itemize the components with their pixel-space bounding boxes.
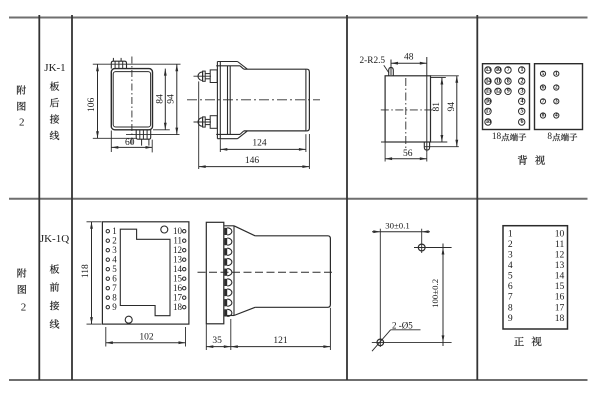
svg-text:12: 12	[173, 245, 182, 255]
svg-text:18: 18	[492, 132, 502, 142]
svg-text:94: 94	[447, 102, 457, 112]
svg-text:16: 16	[173, 283, 183, 293]
svg-text:10: 10	[173, 226, 183, 236]
svg-text:JK-1: JK-1	[44, 62, 65, 74]
svg-text:18: 18	[173, 302, 183, 312]
svg-text:5: 5	[508, 271, 513, 282]
svg-text:15: 15	[555, 281, 565, 292]
svg-text:18: 18	[555, 313, 565, 324]
svg-text:15: 15	[173, 274, 183, 284]
svg-text:2: 2	[555, 85, 558, 91]
svg-text:2: 2	[112, 236, 117, 246]
svg-text:81: 81	[432, 102, 442, 112]
svg-text:60: 60	[125, 138, 135, 148]
svg-text:17: 17	[486, 109, 491, 115]
svg-text:14: 14	[173, 264, 183, 274]
svg-text:118: 118	[81, 264, 91, 278]
svg-text:14: 14	[555, 271, 565, 282]
svg-text:94: 94	[167, 94, 177, 104]
svg-text:1: 1	[555, 71, 558, 77]
svg-text:9: 9	[112, 302, 117, 312]
svg-text:35: 35	[212, 336, 222, 346]
svg-text:13: 13	[486, 67, 491, 73]
svg-text:102: 102	[139, 333, 154, 343]
svg-text:16: 16	[486, 99, 491, 105]
svg-text:48: 48	[404, 53, 414, 63]
svg-text:18: 18	[486, 119, 491, 125]
svg-text:13: 13	[555, 260, 565, 271]
svg-text:16: 16	[555, 292, 565, 303]
svg-text:11: 11	[496, 78, 501, 84]
svg-text:2-R2.5: 2-R2.5	[360, 56, 386, 66]
svg-text:9: 9	[508, 313, 513, 324]
svg-text:8: 8	[547, 132, 552, 142]
svg-text:10: 10	[496, 67, 501, 73]
svg-text:121: 121	[273, 336, 288, 346]
svg-text:14: 14	[486, 78, 491, 84]
svg-text:11: 11	[555, 239, 564, 250]
svg-text:4: 4	[112, 255, 117, 265]
svg-text:2 -Ø5: 2 -Ø5	[392, 320, 413, 330]
svg-text:17: 17	[173, 293, 183, 303]
svg-text:5: 5	[112, 264, 117, 274]
svg-text:6: 6	[542, 85, 545, 91]
svg-text:56: 56	[403, 149, 413, 159]
svg-text:100±0.2: 100±0.2	[430, 279, 440, 308]
svg-text:5: 5	[542, 71, 545, 77]
svg-text:124: 124	[252, 139, 267, 149]
svg-text:11: 11	[173, 236, 182, 246]
svg-text:6: 6	[112, 274, 117, 284]
svg-text:8: 8	[508, 302, 513, 313]
svg-text:3: 3	[555, 99, 558, 105]
svg-text:10: 10	[555, 228, 565, 239]
svg-text:7: 7	[542, 99, 545, 105]
svg-text:17: 17	[555, 302, 565, 313]
svg-text:8: 8	[542, 113, 545, 119]
svg-text:4: 4	[555, 113, 558, 119]
svg-text:2: 2	[19, 116, 25, 128]
svg-text:1: 1	[112, 226, 117, 236]
svg-text:7: 7	[112, 283, 117, 293]
svg-text:2: 2	[508, 239, 513, 250]
svg-text:8: 8	[112, 293, 117, 303]
svg-text:15: 15	[486, 89, 491, 95]
svg-text:12: 12	[555, 250, 565, 261]
svg-text:146: 146	[245, 156, 260, 166]
svg-text:84: 84	[155, 94, 165, 104]
svg-text:1: 1	[508, 228, 513, 239]
svg-text:2: 2	[21, 302, 27, 314]
svg-text:7: 7	[508, 292, 513, 303]
svg-text:6: 6	[508, 281, 513, 292]
svg-text:JK-1Q: JK-1Q	[40, 233, 69, 245]
svg-text:4: 4	[508, 260, 513, 271]
svg-text:106: 106	[87, 97, 97, 112]
svg-text:3: 3	[112, 245, 117, 255]
svg-text:13: 13	[173, 255, 183, 265]
svg-text:3: 3	[508, 250, 513, 261]
svg-text:12: 12	[496, 89, 501, 95]
svg-text:30±0.1: 30±0.1	[385, 220, 410, 230]
